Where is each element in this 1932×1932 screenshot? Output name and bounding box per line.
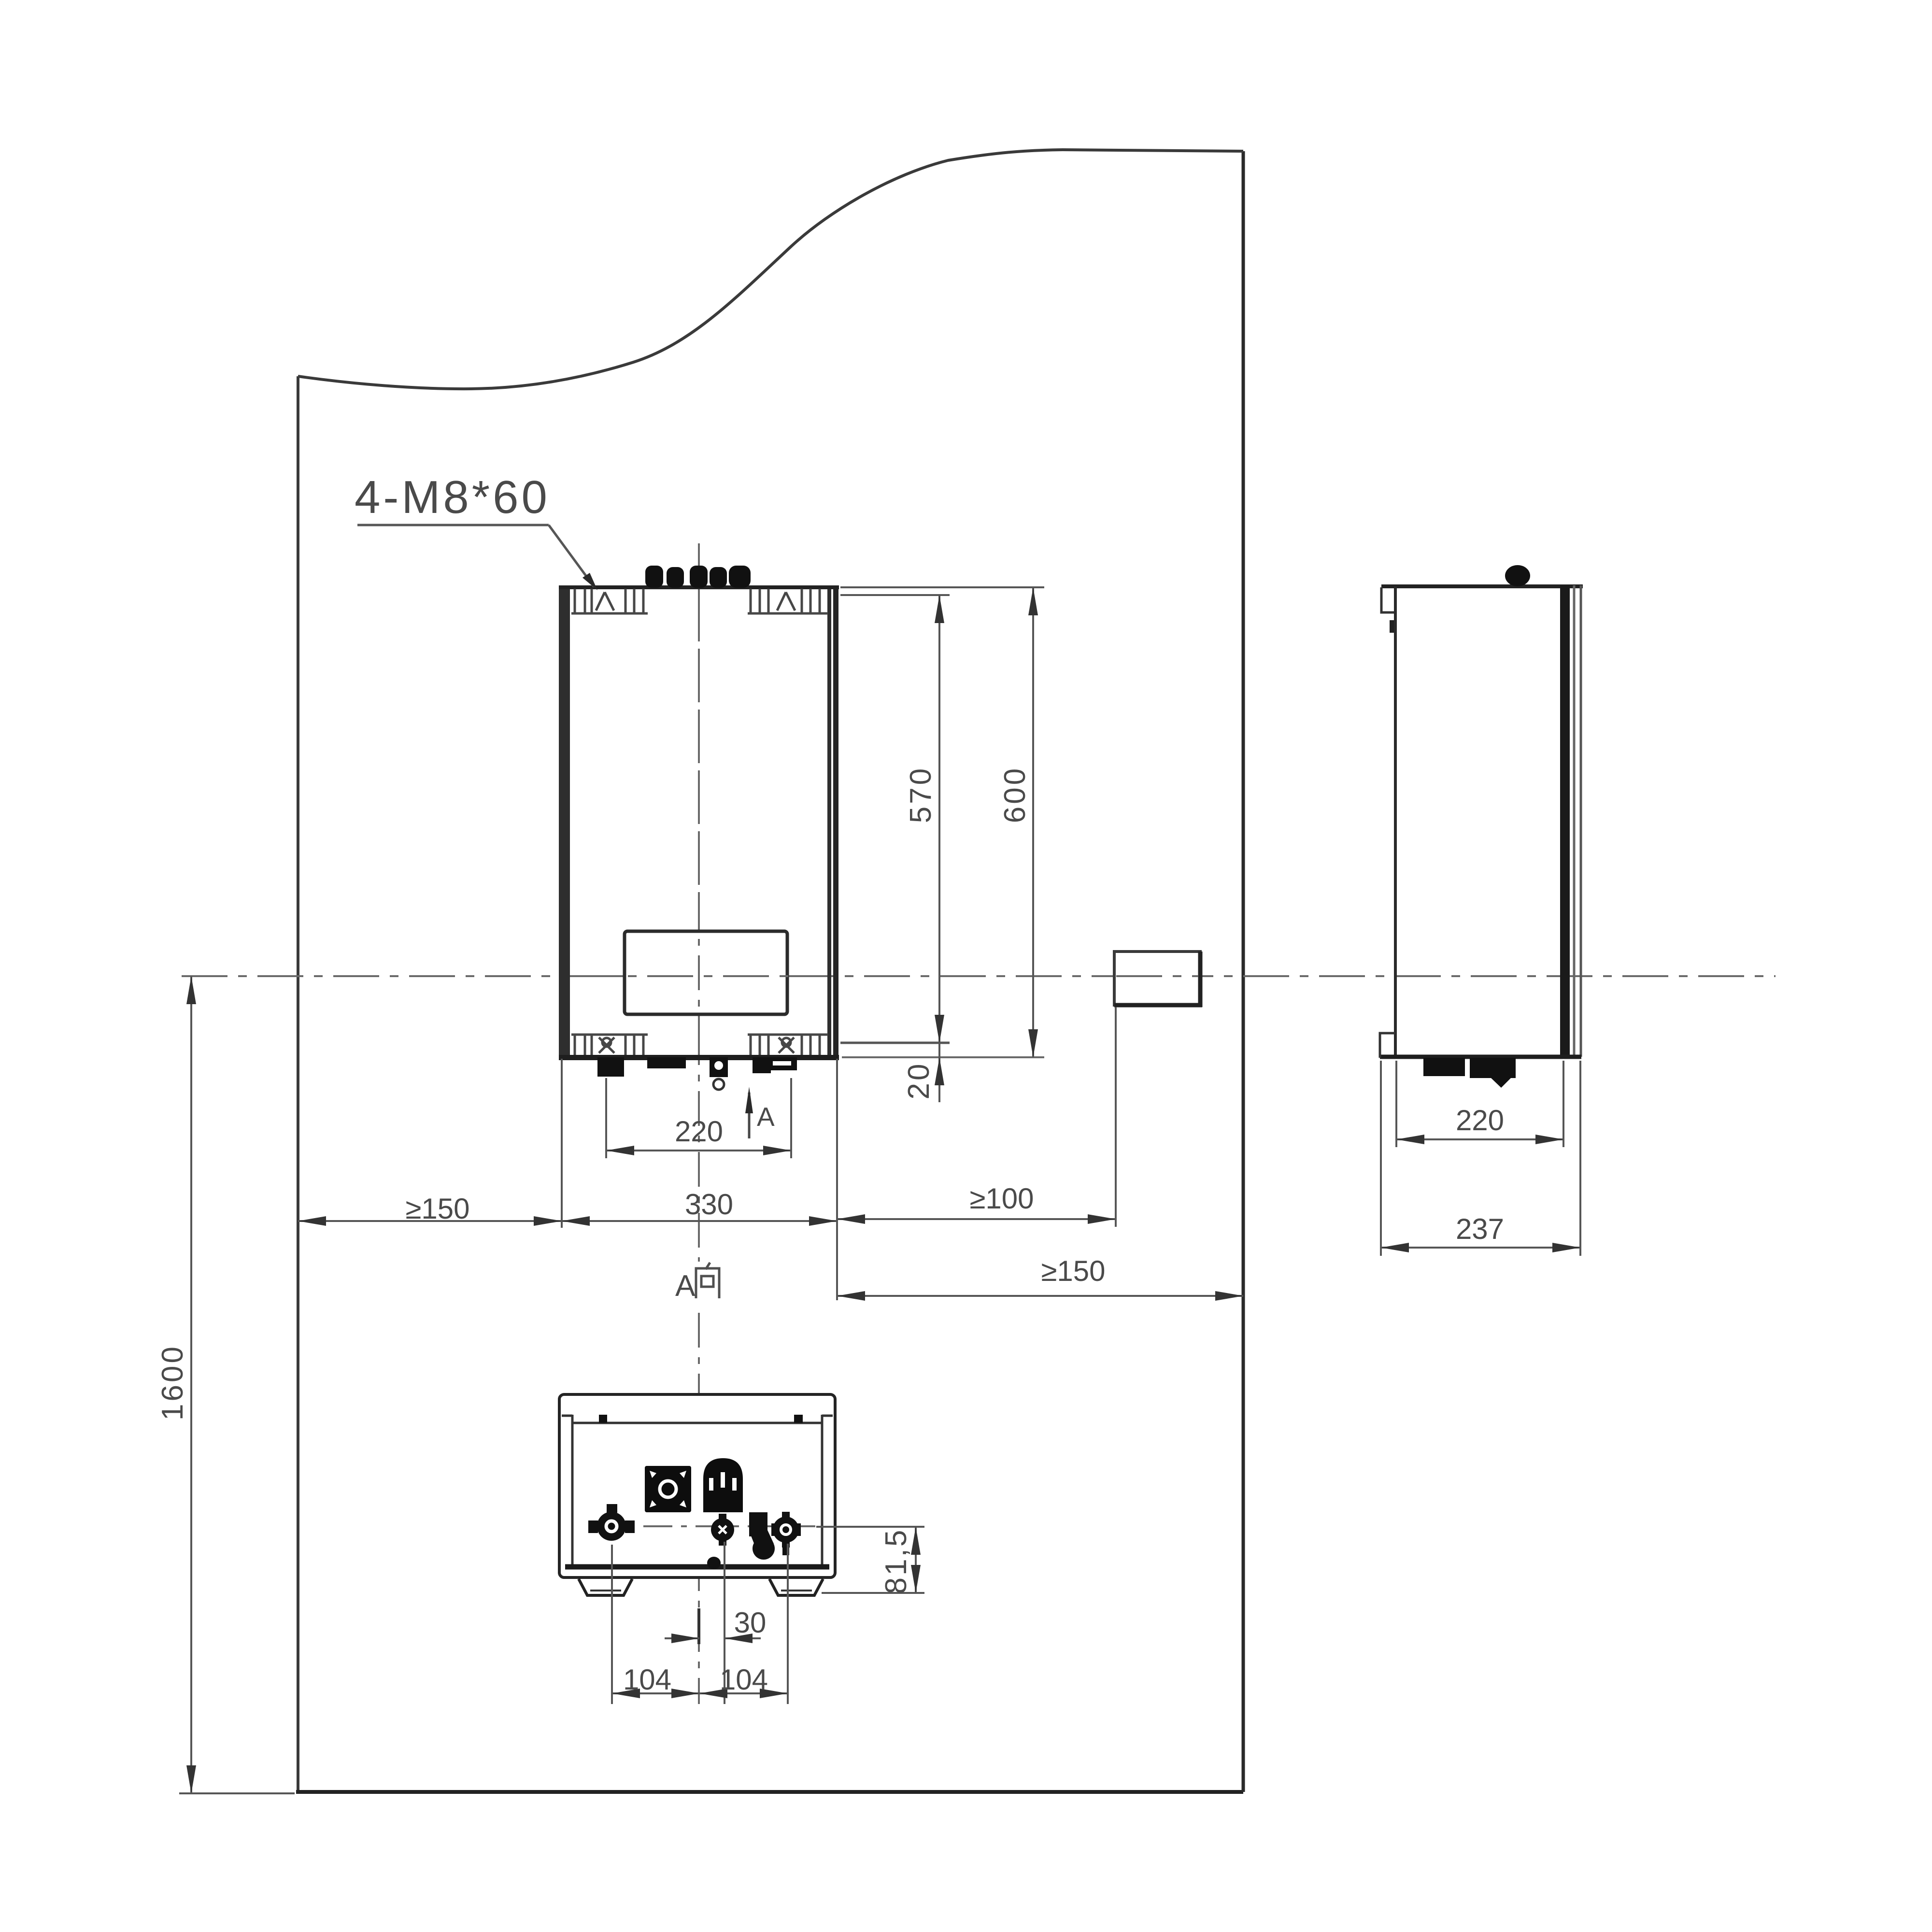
svg-text:220: 220 — [1456, 1104, 1504, 1136]
svg-text:330: 330 — [685, 1188, 733, 1221]
svg-text:220: 220 — [675, 1115, 723, 1148]
svg-text:570: 570 — [904, 766, 938, 823]
svg-text:4-M8*60: 4-M8*60 — [355, 471, 550, 523]
svg-text:237: 237 — [1456, 1213, 1504, 1245]
svg-text:600: 600 — [998, 766, 1032, 823]
svg-text:81,5: 81,5 — [880, 1528, 913, 1594]
svg-text:104: 104 — [720, 1663, 768, 1696]
svg-text:≥150: ≥150 — [405, 1193, 469, 1225]
svg-text:20: 20 — [902, 1062, 936, 1100]
svg-text:A: A — [675, 1269, 696, 1303]
svg-text:≥100: ≥100 — [969, 1182, 1034, 1215]
svg-text:104: 104 — [623, 1663, 671, 1696]
svg-text:1600: 1600 — [156, 1344, 189, 1421]
svg-text:≥150: ≥150 — [1041, 1255, 1105, 1287]
svg-text:30: 30 — [734, 1606, 767, 1639]
svg-text:A: A — [757, 1102, 775, 1132]
